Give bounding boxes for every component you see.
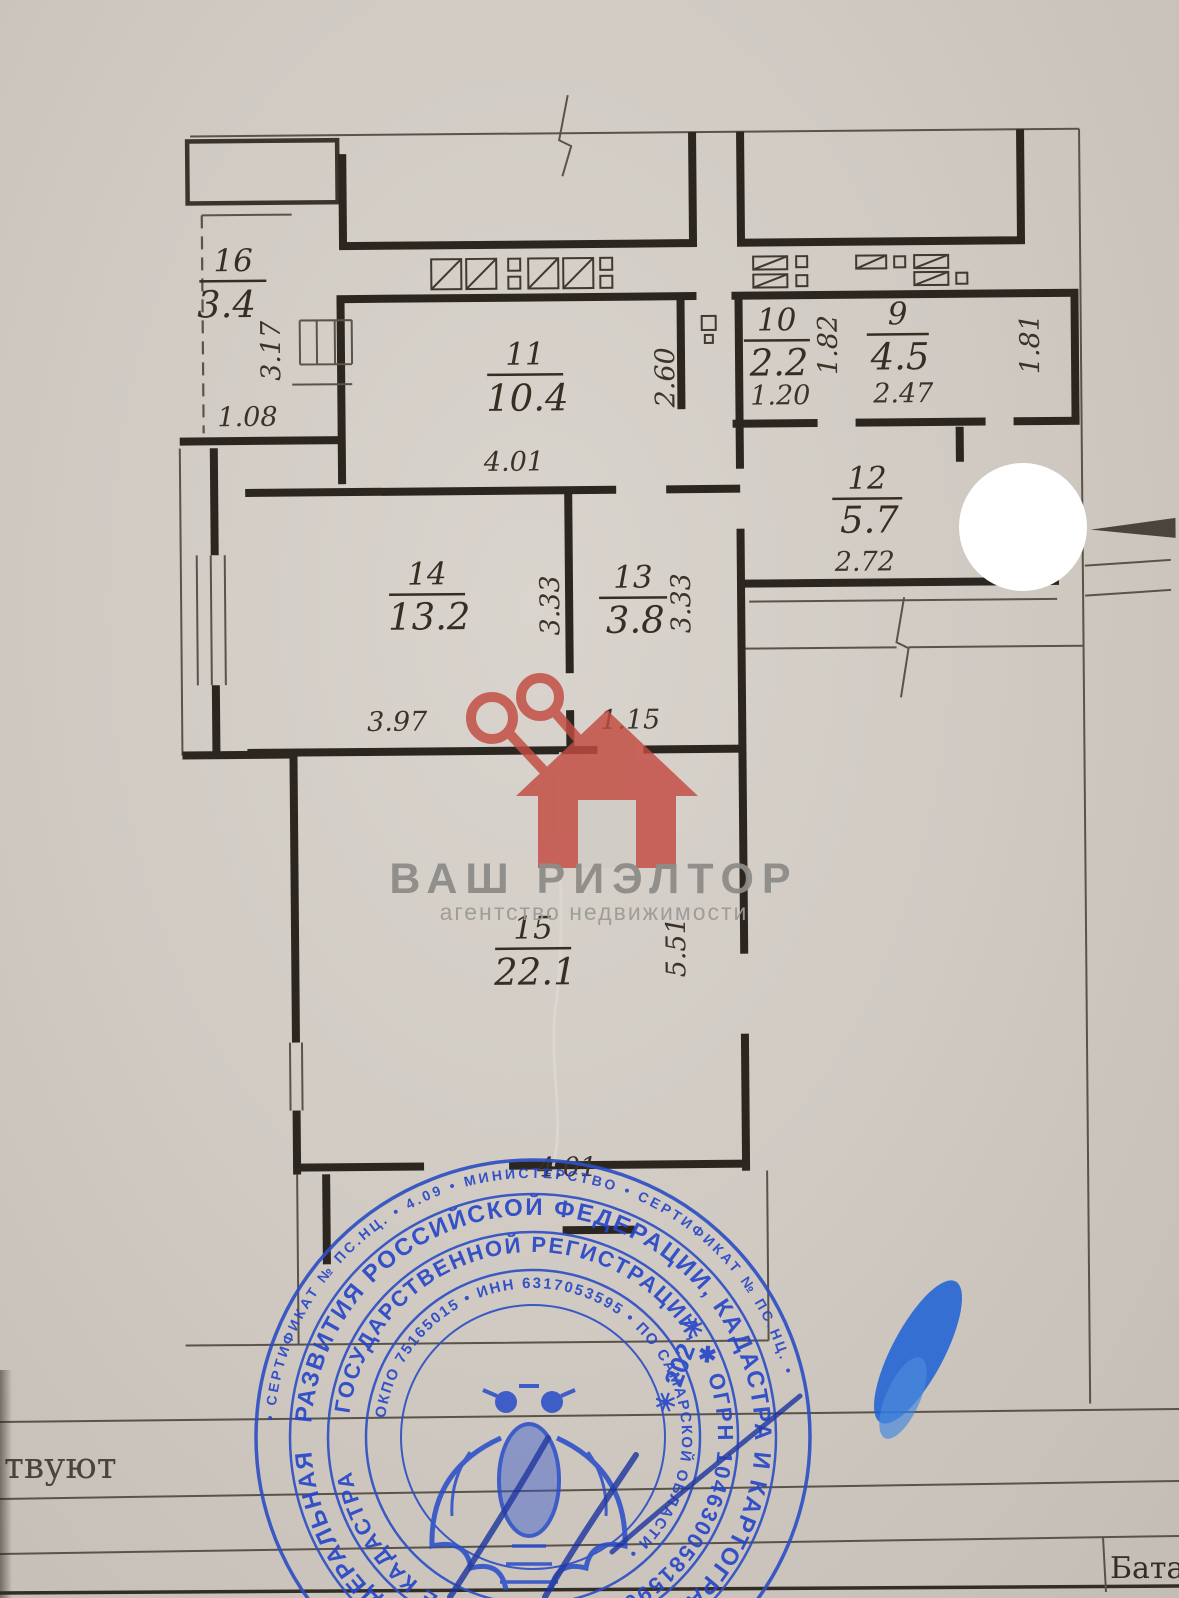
stamp-ink-blob (857, 1269, 978, 1445)
room-area: 3.4 (197, 283, 256, 327)
dim-label: 3.33 (666, 573, 698, 633)
watermark-subtitle: агентство недвижимости (440, 899, 749, 925)
bottom-table: твуют Бата (0, 1409, 1179, 1593)
dim-label: 3.17 (256, 320, 288, 381)
house-keys-logo-icon (471, 678, 698, 868)
privacy-mask-circle (959, 463, 1087, 591)
room-number: 11 (505, 336, 545, 372)
dim-label: 1.08 (217, 402, 277, 434)
room-area: 10.4 (486, 376, 569, 420)
room-label-11: 11 10.4 2.60 4.01 (482, 335, 682, 478)
scanned-floorplan-page: 16 3.4 3.17 1.08 11 10.4 2.60 4.01 10 2.… (0, 0, 1179, 1598)
notes-text-fragment: твуют (4, 1446, 117, 1487)
dim-label: 3.33 (535, 575, 567, 635)
dim-label: 3.97 (367, 706, 428, 738)
room-number: 10 (757, 302, 797, 338)
dim-label: 5.51 (661, 917, 693, 977)
dim-label: 4.01 (483, 446, 544, 478)
dim-label: 2.47 (872, 378, 934, 410)
room-label-14: 14 13.2 3.33 3.97 (366, 555, 568, 738)
room-label-9: 9 4.5 1.81 2.47 (866, 295, 1046, 410)
room-number: 16 (213, 243, 253, 279)
dim-label: 2.72 (834, 546, 895, 578)
watermark-title: ВАШ РИЭЛТОР (389, 855, 798, 903)
room-area: 2.2 (748, 341, 808, 385)
dim-label: 1.20 (750, 380, 810, 412)
room-number: 9 (888, 296, 908, 332)
table-cell-text: Бата (1110, 1551, 1179, 1586)
room-label-10: 10 2.2 1.82 1.20 (744, 302, 845, 412)
photo-edge-shadow (0, 1370, 12, 1598)
rosreestr-stamp: • СЕРТИФИКАТ № ПС.НЦ. • 4.09 • МИНИСТЕРС… (256, 1160, 979, 1598)
room-label-12: 12 5.7 2.72 (832, 460, 903, 578)
dim-label: 2.60 (650, 347, 682, 408)
dim-label: 1.81 (1015, 314, 1047, 374)
room-number: 13 (613, 559, 653, 595)
dim-label: 1.82 (813, 315, 845, 375)
room-label-13: 13 3.8 3.33 1.15 (599, 559, 699, 736)
entry-door-arrow (1090, 518, 1175, 539)
room-area: 4.5 (869, 335, 929, 379)
room-labels: 16 3.4 3.17 1.08 11 10.4 2.60 4.01 10 2.… (197, 236, 1054, 1186)
plan-thick-walls (177, 129, 1087, 1266)
room-area: 22.1 (493, 950, 577, 994)
agency-watermark: ВАШ РИЭЛТОР агентство недвижимости (389, 678, 798, 925)
room-label-15: 15 22.1 5.51 4.01 (493, 909, 695, 1184)
room-area: 5.7 (840, 498, 900, 542)
room-number: 12 (847, 460, 887, 496)
room-label-16: 16 3.4 3.17 1.08 (197, 243, 288, 434)
room-area: 13.2 (388, 595, 471, 639)
room-area: 3.8 (606, 598, 665, 642)
room-number: 14 (407, 556, 447, 592)
